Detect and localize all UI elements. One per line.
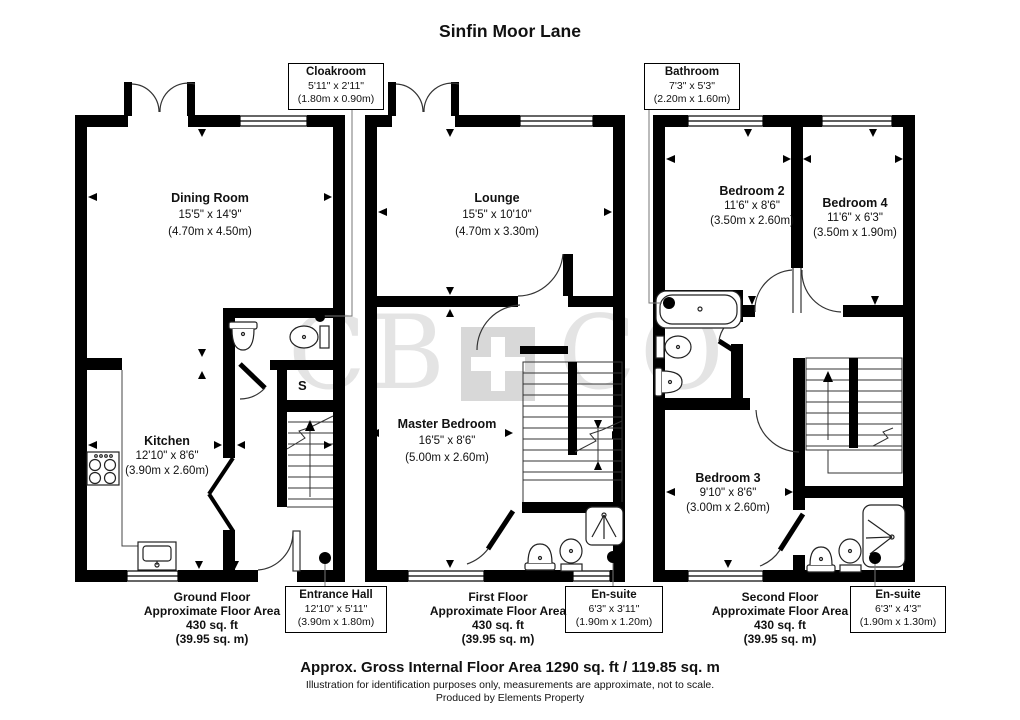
floor-name: Ground Floor xyxy=(112,590,312,604)
room-label-lounge: Lounge 15'5" x 10'10" (4.70m x 3.30m) xyxy=(417,190,577,241)
credit-text: Produced by Elements Property xyxy=(0,692,1020,704)
room-dim-imperial: 15'5" x 14'9" xyxy=(130,207,290,224)
gross-area-text: Approx. Gross Internal Floor Area 1290 s… xyxy=(0,659,1020,676)
floorplan-page: CB CO xyxy=(0,0,1020,720)
storage-label: S xyxy=(298,378,307,393)
ensuite1-toilet-icon xyxy=(560,539,582,571)
floor-label-ground: Ground Floor Approximate Floor Area 430 … xyxy=(112,590,312,646)
room-label-bedroom3: Bedroom 3 9'10" x 8'6" (3.00m x 2.60m) xyxy=(648,471,808,516)
room-label-master-bedroom: Master Bedroom 16'5" x 8'6" (5.00m x 2.6… xyxy=(367,416,527,467)
floor-label-first: First Floor Approximate Floor Area 430 s… xyxy=(398,590,598,646)
ensuite1-sink-icon xyxy=(525,544,555,570)
room-dim-imperial: 16'5" x 8'6" xyxy=(367,433,527,450)
room-label-bedroom4: Bedroom 4 11'6" x 6'3" (3.50m x 1.90m) xyxy=(775,196,935,241)
ensuite2-toilet-icon xyxy=(839,539,861,572)
callout-name: Bathroom xyxy=(648,66,736,80)
floor-name: Second Floor xyxy=(680,590,880,604)
callout-dim-imperial: 5'11" x 2'11" xyxy=(292,80,380,94)
room-dim-metric: (4.70m x 4.50m) xyxy=(130,224,290,241)
page-title: Sinfin Moor Lane xyxy=(0,21,1020,42)
first-floor-doors xyxy=(388,82,563,564)
ground-floor-windows xyxy=(127,116,307,581)
second-floor-stairs xyxy=(806,358,902,473)
room-name: Bedroom 3 xyxy=(648,471,808,486)
bathtub-icon xyxy=(656,291,741,328)
room-dim-imperial: 15'5" x 10'10" xyxy=(417,207,577,224)
room-name: Kitchen xyxy=(87,434,247,449)
room-dim-metric: (3.90m x 2.60m) xyxy=(87,464,247,479)
room-dim-imperial: 12'10" x 8'6" xyxy=(87,449,247,464)
room-dim-imperial: 9'10" x 8'6" xyxy=(648,486,808,501)
floor-area-m: (39.95 sq. m) xyxy=(112,632,312,646)
floor-area-caption: Approximate Floor Area xyxy=(680,604,880,618)
floor-area-caption: Approximate Floor Area xyxy=(112,604,312,618)
callout-name: Cloakroom xyxy=(292,66,380,80)
floor-area-ft: 430 sq. ft xyxy=(680,618,880,632)
callout-cloakroom: Cloakroom 5'11" x 2'11" (1.80m x 0.90m) xyxy=(288,63,384,110)
room-dim-metric: (3.50m x 1.90m) xyxy=(775,226,935,241)
callout-dim-metric: (1.80m x 0.90m) xyxy=(292,93,380,107)
ground-floor-doors xyxy=(124,82,300,571)
room-name: Lounge xyxy=(417,190,577,207)
room-dim-metric: (5.00m x 2.60m) xyxy=(367,450,527,467)
floor-area-ft: 430 sq. ft xyxy=(398,618,598,632)
floor-area-m: (39.95 sq. m) xyxy=(398,632,598,646)
floor-area-ft: 430 sq. ft xyxy=(112,618,312,632)
room-dim-metric: (3.00m x 2.60m) xyxy=(648,501,808,516)
wc-toilet-icon xyxy=(290,326,329,348)
floor-label-second: Second Floor Approximate Floor Area 430 … xyxy=(680,590,880,646)
callout-dim-imperial: 7'3" x 5'3" xyxy=(648,80,736,94)
floor-name: First Floor xyxy=(398,590,598,604)
floor-area-m: (39.95 sq. m) xyxy=(680,632,880,646)
disclaimer-text: Illustration for identification purposes… xyxy=(0,679,1020,691)
room-dim-imperial: 11'6" x 6'3" xyxy=(775,211,935,226)
room-dim-metric: (4.70m x 3.30m) xyxy=(417,224,577,241)
room-name: Master Bedroom xyxy=(367,416,527,433)
callout-dim-metric: (2.20m x 1.60m) xyxy=(648,93,736,107)
room-name: Bedroom 4 xyxy=(775,196,935,211)
ensuite1-shower-icon xyxy=(586,507,623,545)
floor-area-caption: Approximate Floor Area xyxy=(398,604,598,618)
bathroom-sink-icon xyxy=(655,368,682,396)
bathroom-toilet-icon xyxy=(656,336,691,358)
kitchen-sink-icon xyxy=(138,542,176,570)
ground-floor-stairs xyxy=(287,416,333,507)
room-name: Dining Room xyxy=(130,190,290,207)
room-label-dining: Dining Room 15'5" x 14'9" (4.70m x 4.50m… xyxy=(130,190,290,241)
callout-bathroom: Bathroom 7'3" x 5'3" (2.20m x 1.60m) xyxy=(644,63,740,110)
room-label-kitchen: Kitchen 12'10" x 8'6" (3.90m x 2.60m) xyxy=(87,434,247,479)
ensuite2-sink-icon xyxy=(807,547,835,572)
first-floor-stairs xyxy=(523,362,622,502)
